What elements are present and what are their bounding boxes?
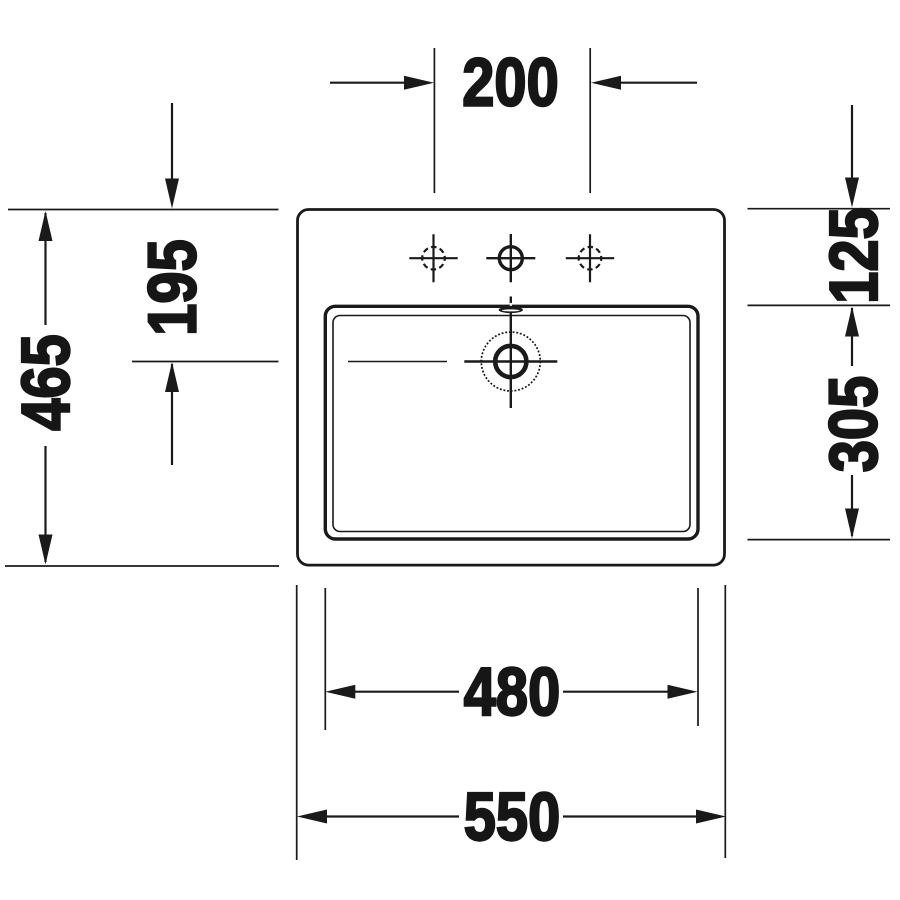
svg-text:200: 200: [462, 45, 558, 120]
svg-text:480: 480: [464, 655, 560, 730]
svg-text:465: 465: [9, 334, 84, 430]
svg-text:550: 550: [464, 780, 560, 855]
svg-text:195: 195: [135, 239, 210, 335]
svg-text:125: 125: [817, 207, 892, 303]
svg-text:305: 305: [816, 376, 891, 472]
